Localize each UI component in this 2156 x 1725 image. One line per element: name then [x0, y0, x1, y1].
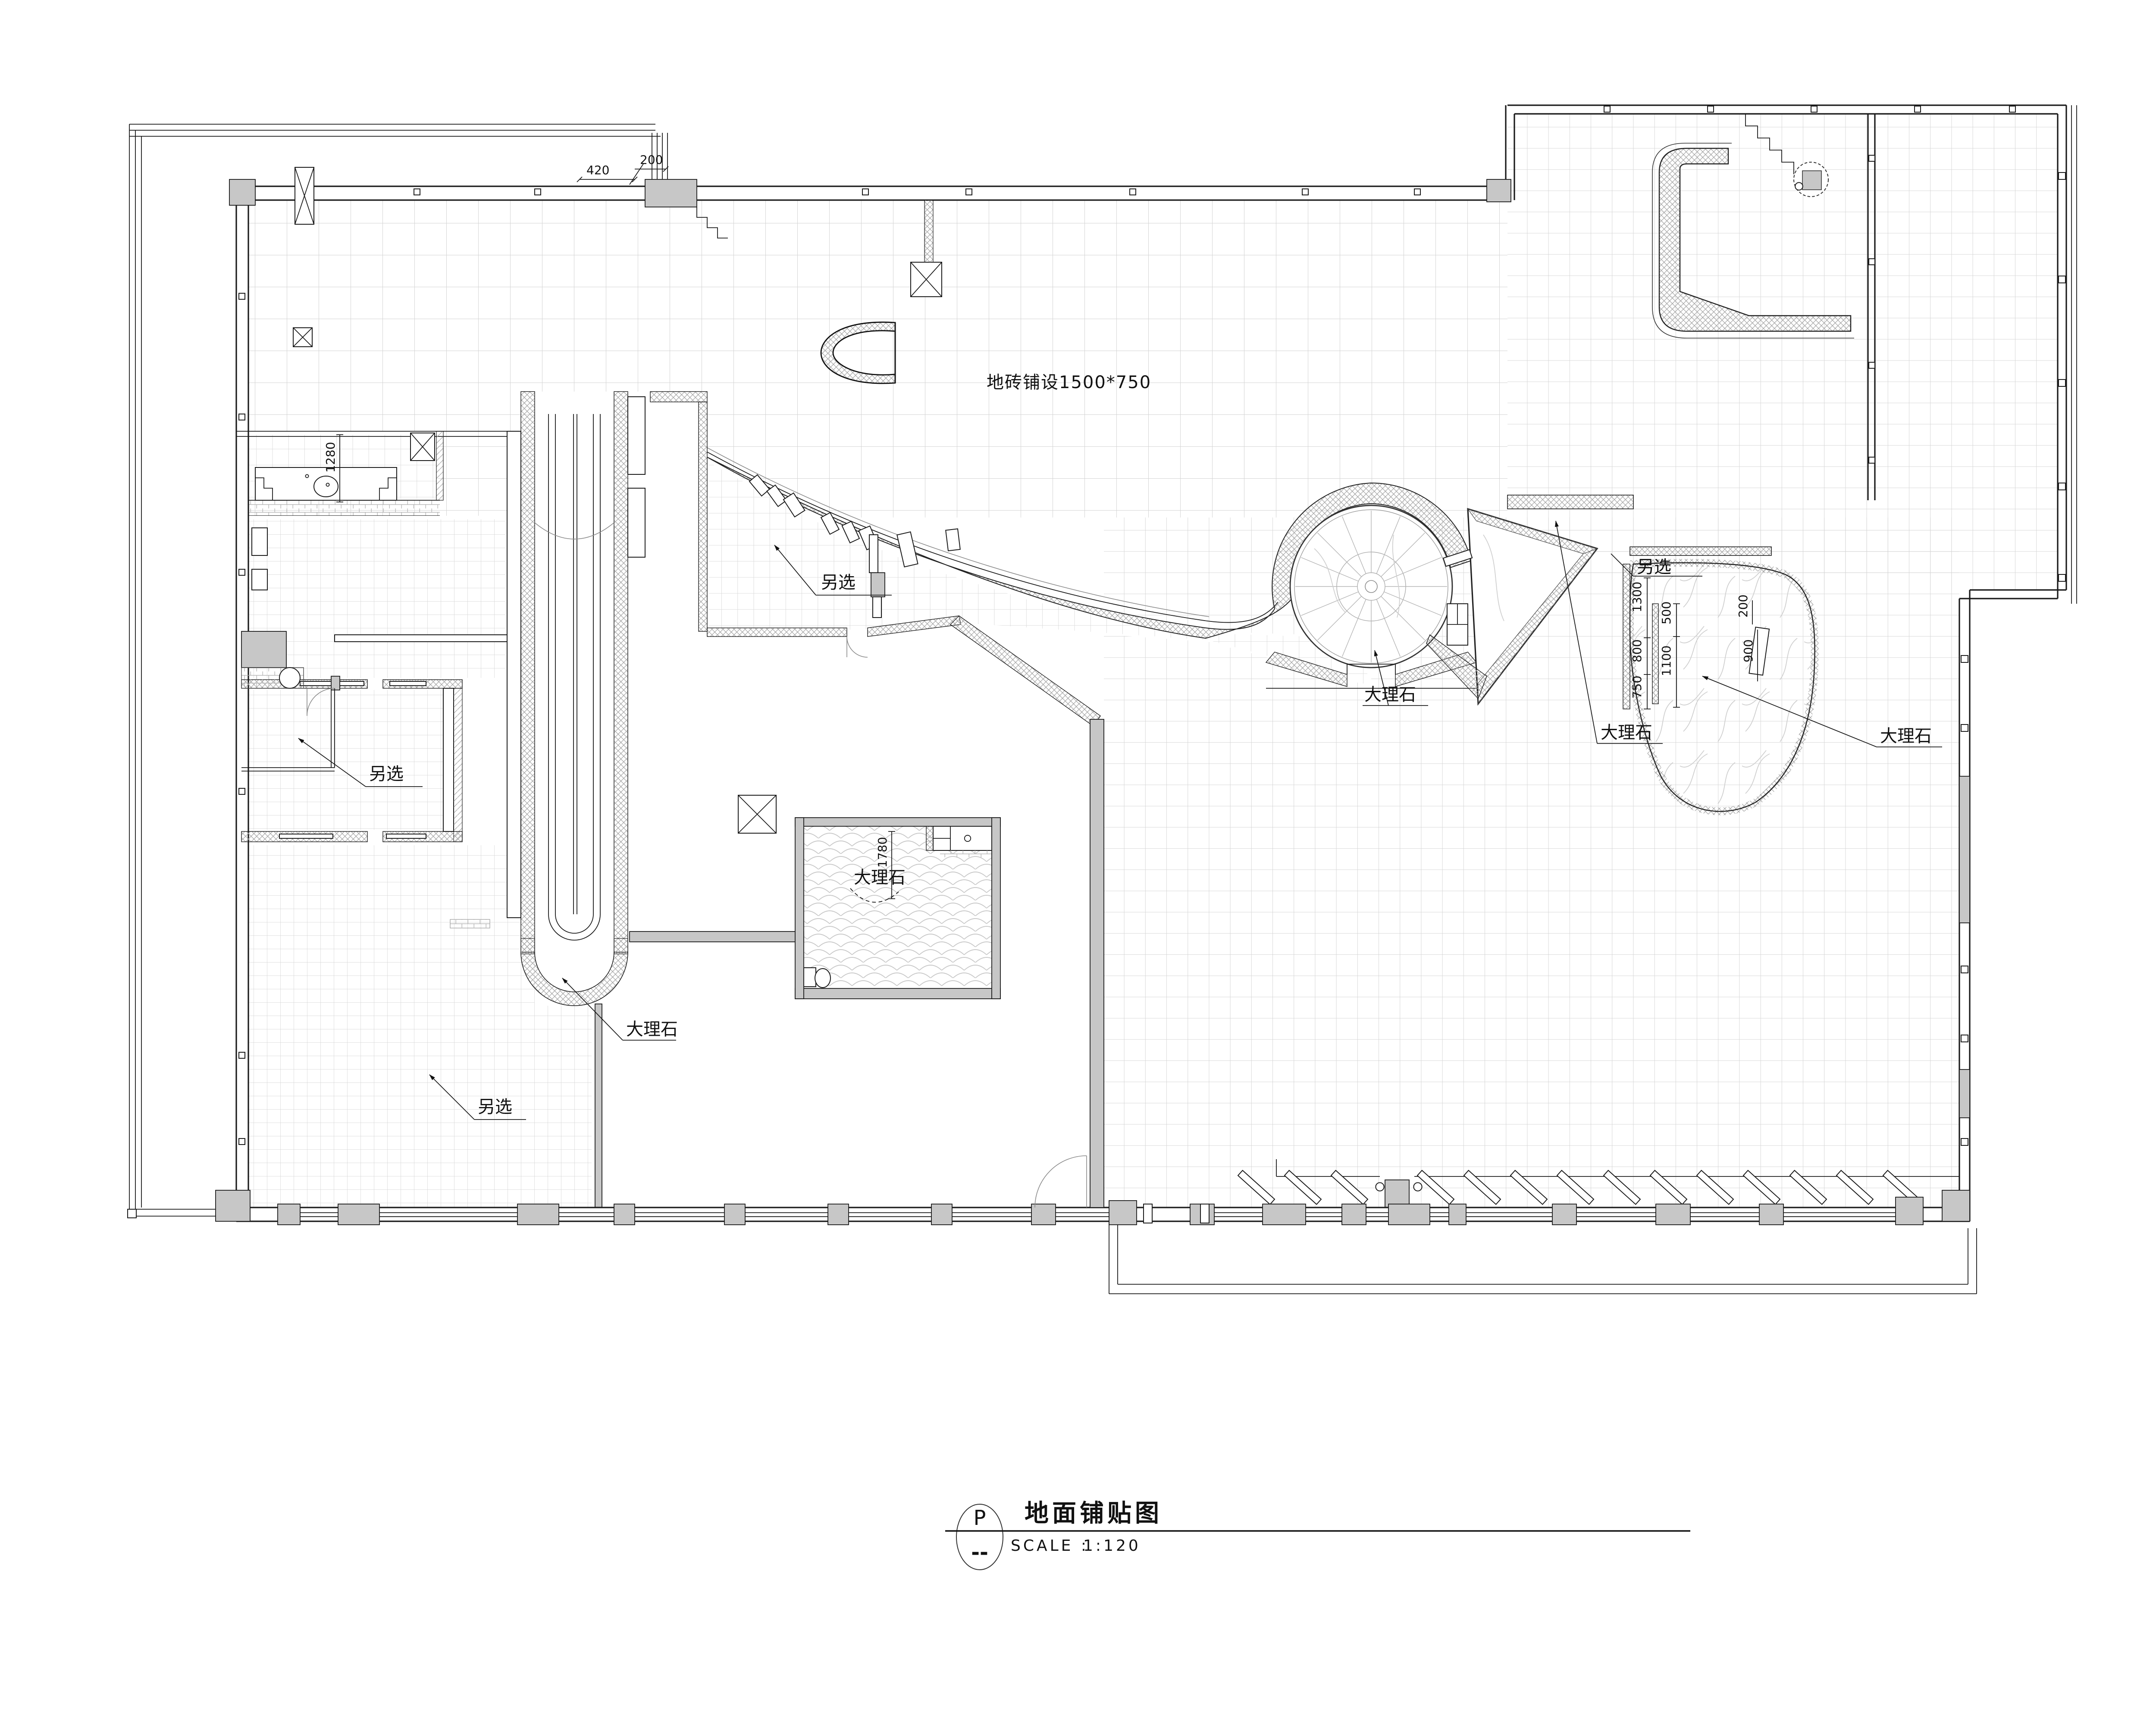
- dim-1100: 1100: [1659, 646, 1673, 676]
- dim-900: 900: [1741, 640, 1755, 662]
- dim-1280: 1280: [323, 442, 338, 473]
- dim-200b: 200: [1736, 595, 1750, 618]
- dim-200: 200: [640, 153, 663, 167]
- dim-800: 800: [1630, 640, 1644, 662]
- dim-420: 420: [586, 163, 609, 177]
- label-marble-triangle: 大理石: [1601, 723, 1652, 743]
- titleblock-sheet: --: [971, 1540, 988, 1565]
- label-alt-hall: 另选: [821, 573, 856, 593]
- floor-plan-page: 地砖铺设1500*750 420 200 1280 另选 另选 另选 另选 大理…: [0, 0, 2156, 1725]
- label-marble-escalator: 大理石: [626, 1019, 678, 1039]
- dim-1780: 1780: [875, 837, 890, 868]
- title-block: P -- 地面铺贴图 SCALE : 1:120: [945, 1499, 1690, 1570]
- label-alt-teardrop: 另选: [1637, 557, 1671, 577]
- label-marble-circle: 大理石: [1364, 685, 1416, 705]
- scale-label: SCALE :: [1011, 1537, 1089, 1555]
- dim-500: 500: [1659, 602, 1673, 624]
- floor-plan-canvas: 地砖铺设1500*750 420 200 1280 另选 另选 另选 另选 大理…: [0, 0, 2156, 1725]
- tile-note: 地砖铺设1500*750: [987, 373, 1151, 392]
- marble-room: [804, 826, 992, 988]
- dim-1300: 1300: [1630, 582, 1644, 612]
- label-marble-teardrop: 大理石: [1880, 726, 1932, 746]
- titleblock-symbol: P: [974, 1506, 986, 1530]
- label-marble-room: 大理石: [854, 868, 906, 888]
- drawing-title: 地面铺贴图: [1025, 1499, 1163, 1527]
- label-alt-left: 另选: [369, 764, 404, 784]
- label-alt-bottom-left: 另选: [478, 1097, 512, 1117]
- dim-750: 750: [1630, 676, 1644, 699]
- scale-value: 1:120: [1083, 1537, 1141, 1555]
